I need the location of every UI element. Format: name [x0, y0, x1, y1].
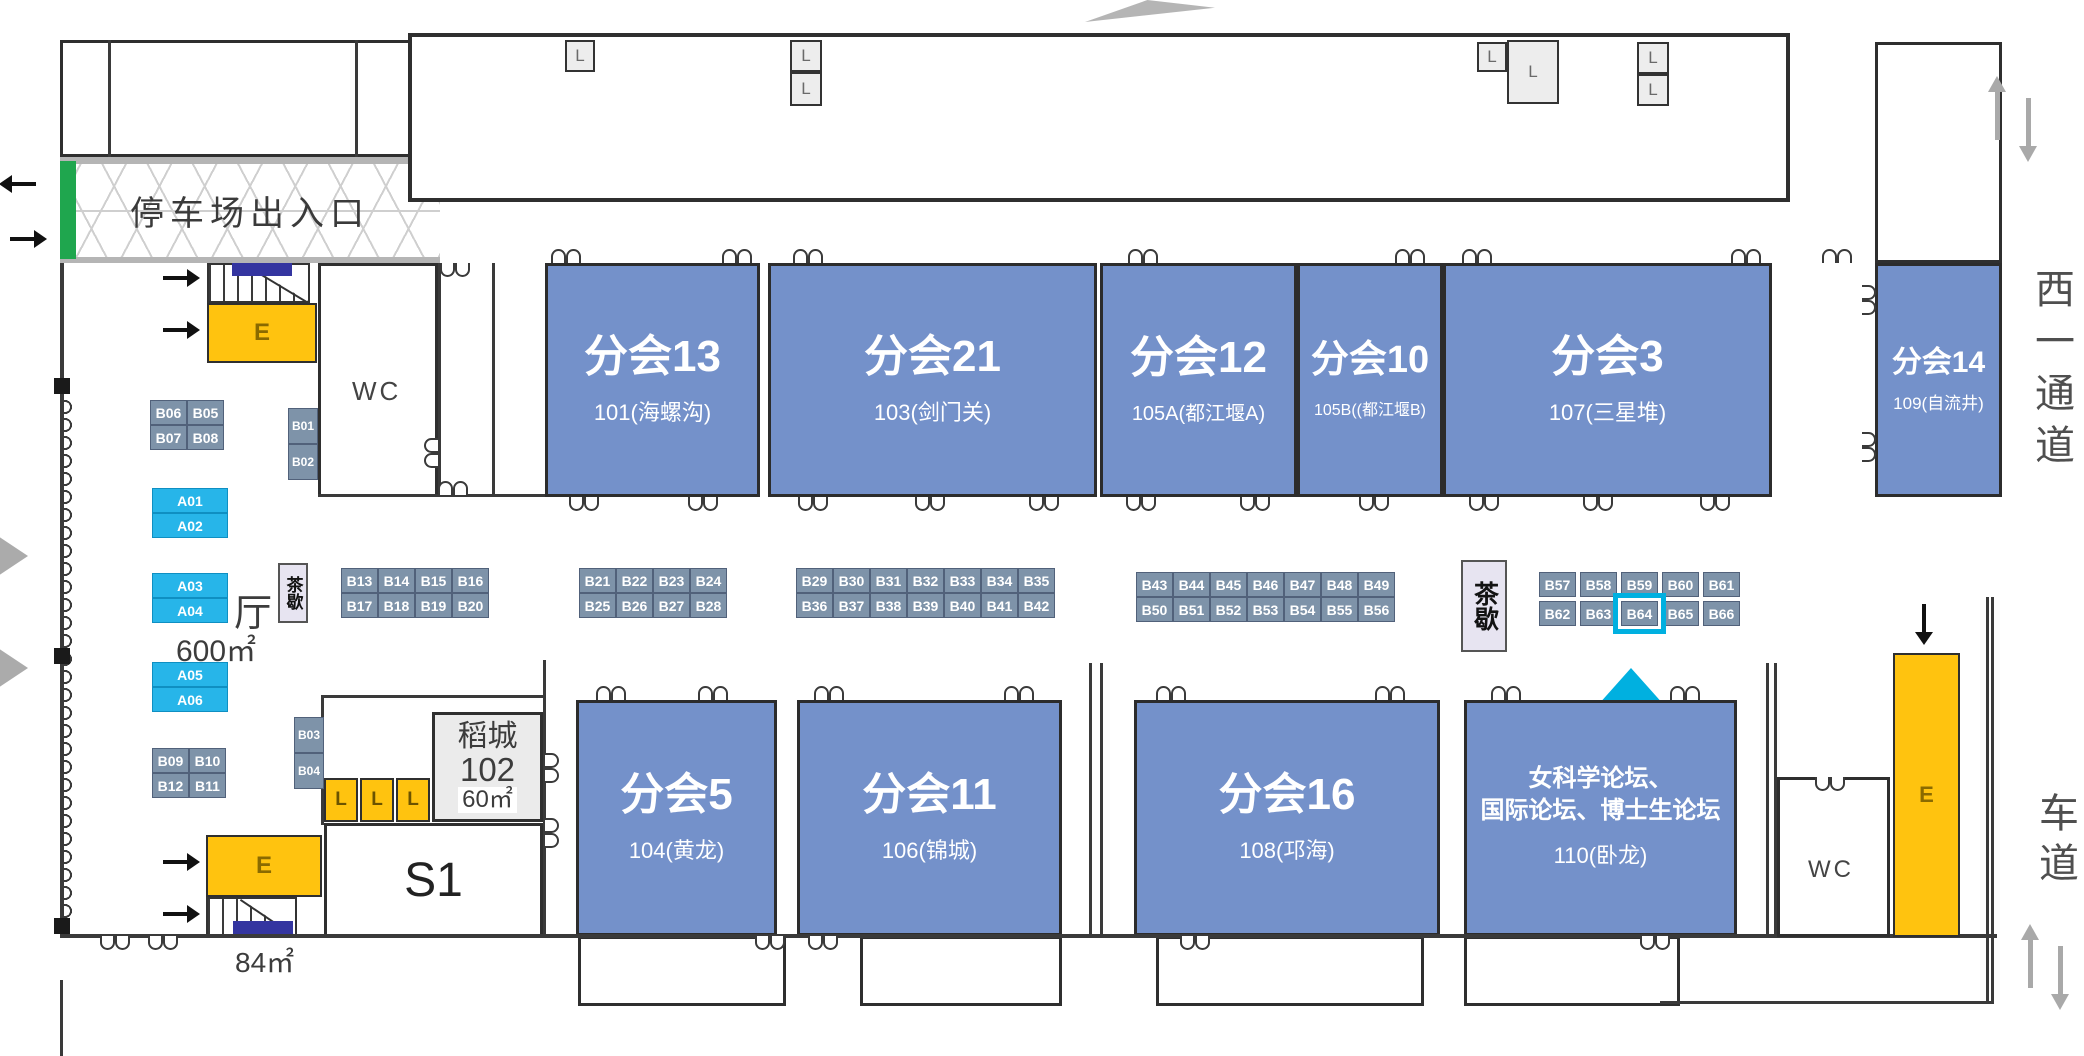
- escalator-bar: [232, 263, 292, 276]
- entry-arrow-icon: [0, 532, 28, 580]
- lift-box[interactable]: L: [1507, 40, 1559, 104]
- booth-b27[interactable]: B27: [653, 593, 690, 618]
- door-arc: [551, 249, 581, 263]
- door-arc: [545, 818, 559, 848]
- booth-b31[interactable]: B31: [870, 568, 907, 593]
- booth-b53[interactable]: B53: [1247, 597, 1284, 622]
- booth-b10[interactable]: B10: [189, 748, 226, 773]
- booth-b07[interactable]: B07: [150, 425, 187, 450]
- door-arc: [100, 936, 130, 950]
- door-arc: [148, 936, 178, 950]
- room-105b-title: 分会10: [1311, 340, 1429, 382]
- room-101-subtitle: 101(海螺沟): [594, 395, 711, 427]
- booth-b25[interactable]: B25: [579, 593, 616, 618]
- door-arc: [814, 686, 844, 700]
- annex-box: [860, 936, 1062, 1006]
- corridor-wall: [1766, 663, 1777, 937]
- top-hall: [408, 33, 1790, 202]
- room-107[interactable]: 分会3 107(三星堆): [1443, 263, 1772, 497]
- door-arc: [596, 686, 626, 700]
- up-arrow-icon: [1995, 90, 2000, 140]
- stair-area-label: 84㎡: [235, 941, 294, 981]
- door-arc: [1862, 285, 1876, 315]
- room-105b-subtitle: 105B((都江堰B): [1314, 396, 1426, 420]
- booth-group-b57: B57B58B59B60B61B62B63B64B65B66: [1537, 570, 1742, 628]
- right-arrow-icon: [163, 912, 189, 916]
- booth-a06[interactable]: A06: [152, 687, 228, 712]
- wall: [492, 263, 495, 497]
- booth-b40[interactable]: B40: [944, 593, 981, 618]
- booth-group-a03: A03A04: [152, 573, 228, 623]
- room-s1[interactable]: S1: [324, 823, 543, 937]
- door-arc: [1815, 777, 1845, 791]
- door-arc: [1670, 686, 1700, 700]
- booth-group-b29: B29B30B31B32B33B34B35B36B37B38B39B40B41B…: [796, 568, 1055, 618]
- door-arc: [798, 497, 828, 511]
- room-103-title: 分会21: [864, 333, 1001, 381]
- booth-b17[interactable]: B17: [341, 593, 378, 618]
- room-105b[interactable]: 分会10 105B((都江堰B): [1297, 263, 1443, 497]
- elevator-box[interactable]: E: [207, 303, 317, 363]
- booth-b56[interactable]: B56: [1358, 597, 1395, 622]
- tea-break-booth[interactable]: 茶歇: [278, 563, 308, 623]
- booth-a04[interactable]: A04: [152, 598, 228, 623]
- door-arc: [545, 753, 559, 783]
- west-corridor-label: 西一通道: [2022, 268, 2080, 476]
- wc-bottom-label: WC: [1808, 856, 1854, 884]
- door-arc: [915, 497, 945, 511]
- wall-post: [54, 918, 70, 934]
- room-104-title: 分会5: [620, 771, 732, 819]
- booth-b23[interactable]: B23: [653, 568, 690, 593]
- booth-b26[interactable]: B26: [616, 593, 653, 618]
- door-arc: [440, 263, 470, 277]
- room-101[interactable]: 分会13 101(海螺沟): [545, 263, 760, 497]
- booth-b47[interactable]: B47: [1284, 572, 1321, 597]
- booth-b62[interactable]: B62: [1539, 601, 1576, 626]
- booth-group-b13: B13B14B15B16B17B18B19B20: [341, 568, 489, 618]
- room-107-title: 分会3: [1551, 333, 1663, 381]
- right-arrow-icon: [163, 860, 189, 864]
- booth-b58[interactable]: B58: [1580, 572, 1617, 597]
- booth-b02[interactable]: B02: [288, 444, 318, 480]
- room-102-name: 稻城: [458, 721, 518, 753]
- lift-label: L: [575, 46, 584, 66]
- door-arc: [1126, 497, 1156, 511]
- parking-entrance-label: 停车场出入口: [130, 186, 370, 235]
- parking-gate-bar: [60, 161, 76, 259]
- booth-b14[interactable]: B14: [378, 568, 415, 593]
- booth-group-a01: A01A02: [152, 488, 228, 538]
- room-105a-subtitle: 105A(都江堰A): [1132, 397, 1265, 426]
- exit-left-arrow-icon: [10, 182, 36, 186]
- booth-group-b03: B03B04: [294, 717, 324, 789]
- booth-b04[interactable]: B04: [294, 753, 324, 789]
- lift-group-yellow: LLL: [324, 778, 432, 822]
- lift-label: L: [801, 79, 810, 99]
- booth-b01[interactable]: B01: [288, 408, 318, 444]
- lift-box[interactable]: L: [1477, 42, 1507, 72]
- wall: [108, 40, 111, 157]
- door-arc: [1700, 497, 1730, 511]
- room-102-area: 60㎡: [458, 787, 517, 812]
- door-arc: [1375, 686, 1405, 700]
- room-110-line2: 国际论坛、博士生论坛: [1481, 798, 1721, 824]
- floor-plan: 停车场出入口 L L L L L L L 分会13 101(海螺沟) 分会21 …: [0, 0, 2084, 1056]
- booth-b13[interactable]: B13: [341, 568, 378, 593]
- booth-b33[interactable]: B33: [944, 568, 981, 593]
- booth-b45[interactable]: B45: [1210, 572, 1247, 597]
- door-arc: [1395, 249, 1425, 263]
- lift-label: L: [1487, 47, 1496, 67]
- tea-break-label: 茶歇: [1472, 581, 1497, 631]
- booth-b41[interactable]: B41: [981, 593, 1018, 618]
- wall: [321, 695, 545, 698]
- booth-b05[interactable]: B05: [187, 400, 224, 425]
- booth-b48[interactable]: B48: [1321, 572, 1358, 597]
- wall-post: [54, 648, 70, 664]
- booth-b51[interactable]: B51: [1173, 597, 1210, 622]
- booth-b39[interactable]: B39: [907, 593, 944, 618]
- booth-b22[interactable]: B22: [616, 568, 653, 593]
- room-109[interactable]: 分会14 109(自流井): [1875, 263, 2002, 497]
- door-arc: [1731, 249, 1761, 263]
- room-105a-title: 分会12: [1130, 334, 1267, 382]
- wall: [318, 494, 545, 497]
- room-101-title: 分会13: [584, 333, 721, 381]
- wall: [60, 934, 1997, 938]
- door-arc: [1491, 686, 1521, 700]
- wall: [543, 660, 546, 937]
- door-arc: [688, 497, 718, 511]
- booth-b34[interactable]: B34: [981, 568, 1018, 593]
- room-104[interactable]: 分会5 104(黄龙): [576, 700, 777, 936]
- booth-group-b06: B06B05B07B08: [150, 400, 224, 450]
- right-arrow-icon: [163, 276, 189, 280]
- room-103[interactable]: 分会21 103(剑门关): [768, 263, 1097, 497]
- top-direction-arrow-icon: [1085, 0, 1215, 22]
- room-110[interactable]: 女科学论坛、 国际论坛、博士生论坛 110(卧龙): [1464, 700, 1737, 936]
- room-106[interactable]: 分会11 106(锦城): [797, 700, 1062, 936]
- booth-b64[interactable]: B64: [1621, 601, 1658, 626]
- door-arc: [698, 686, 728, 700]
- booth-b16[interactable]: B16: [452, 568, 489, 593]
- tea-break-booth[interactable]: 茶歇: [1461, 560, 1507, 652]
- room-110-subtitle: 110(卧龙): [1554, 838, 1648, 870]
- booth-group-b01: B01B02: [288, 408, 318, 480]
- door-arc: [1862, 432, 1876, 462]
- booth-group-a05: A05A06: [152, 662, 228, 712]
- booth-b29[interactable]: B29: [796, 568, 833, 593]
- booth-a03[interactable]: A03: [152, 573, 228, 598]
- door-arc: [808, 936, 838, 950]
- booth-b54[interactable]: B54: [1284, 597, 1321, 622]
- top-left-building: [60, 40, 440, 157]
- booth-l[interactable]: L: [324, 778, 358, 822]
- booth-b37[interactable]: B37: [833, 593, 870, 618]
- booth-group-b21: B21B22B23B24B25B26B27B28: [579, 568, 727, 618]
- room-108[interactable]: 分会16 108(邛海): [1134, 700, 1440, 936]
- booth-b35[interactable]: B35: [1018, 568, 1055, 593]
- door-arc: [1128, 249, 1158, 263]
- booth-group-b09: B09B10B12B11: [152, 748, 226, 798]
- booth-b43[interactable]: B43: [1136, 572, 1173, 597]
- booth-b20[interactable]: B20: [452, 593, 489, 618]
- room-109-title: 分会14: [1892, 346, 1985, 379]
- room-103-subtitle: 103(剑门关): [874, 395, 991, 427]
- door-arc: [1180, 936, 1210, 950]
- top-right-room: [1875, 42, 2002, 263]
- room-106-title: 分会11: [862, 771, 997, 819]
- entry-arrow-icon: [0, 644, 28, 692]
- booth-b49[interactable]: B49: [1358, 572, 1395, 597]
- lift-label: L: [1648, 80, 1657, 100]
- elevator-box[interactable]: E: [1893, 653, 1960, 937]
- booth-b28[interactable]: B28: [690, 593, 727, 618]
- booth-b30[interactable]: B30: [833, 568, 870, 593]
- down-arrow-icon: [2026, 98, 2031, 148]
- up-arrow-icon: [2028, 938, 2033, 988]
- booth-b21[interactable]: B21: [579, 568, 616, 593]
- corridor-wall: [1089, 663, 1103, 937]
- wall-post: [54, 378, 70, 394]
- booth-b12[interactable]: B12: [152, 773, 189, 798]
- elevator-label: E: [254, 319, 270, 347]
- door-arc: [438, 481, 468, 495]
- booth-group-b43: B43B44B45B46B47B48B49B50B51B52B53B54B55B…: [1136, 572, 1395, 622]
- room-102-number: 102: [460, 753, 515, 788]
- down-arrow-icon: [2058, 946, 2063, 996]
- room-108-title: 分会16: [1219, 771, 1356, 819]
- elevator-label: E: [1919, 782, 1934, 808]
- right-arrow-icon: [163, 328, 189, 332]
- booth-b09[interactable]: B09: [152, 748, 189, 773]
- lift-label: L: [801, 46, 810, 66]
- door-arc: [424, 438, 438, 468]
- lift-box[interactable]: L: [790, 40, 822, 72]
- wall: [60, 980, 63, 1056]
- door-arc: [1462, 249, 1492, 263]
- door-arc: [722, 249, 752, 263]
- lift-box[interactable]: L: [1637, 74, 1669, 106]
- corridor-wall: [1986, 597, 1994, 1003]
- down-arrow-icon: [1922, 604, 1926, 634]
- room-105a[interactable]: 分会12 105A(都江堰A): [1100, 263, 1297, 497]
- elevator-box[interactable]: E: [206, 835, 322, 897]
- booth-b32[interactable]: B32: [907, 568, 944, 593]
- booth-b42[interactable]: B42: [1018, 593, 1055, 618]
- booth-b19[interactable]: B19: [415, 593, 452, 618]
- door-arc: [1029, 497, 1059, 511]
- booth-b11[interactable]: B11: [189, 773, 226, 798]
- booth-b65[interactable]: B65: [1662, 601, 1699, 626]
- room-s1-label: S1: [404, 853, 463, 908]
- tea-break-label: 茶歇: [285, 576, 302, 610]
- booth-b60[interactable]: B60: [1662, 572, 1699, 597]
- lift-box[interactable]: L: [1637, 42, 1669, 74]
- lift-label: L: [1528, 62, 1537, 82]
- door-arc: [1822, 249, 1852, 263]
- booth-b55[interactable]: B55: [1321, 597, 1358, 622]
- enter-right-arrow-icon: [10, 237, 36, 241]
- booth-b15[interactable]: B15: [415, 568, 452, 593]
- booth-b57[interactable]: B57: [1539, 572, 1576, 597]
- booth-b38[interactable]: B38: [870, 593, 907, 618]
- door-arc: [1156, 686, 1186, 700]
- booth-b06[interactable]: B06: [150, 400, 187, 425]
- booth-b46[interactable]: B46: [1247, 572, 1284, 597]
- room-110-line1: 女科学论坛、: [1529, 766, 1673, 792]
- wall: [438, 263, 441, 497]
- door-arc: [755, 936, 785, 950]
- booth-b63[interactable]: B63: [1580, 601, 1617, 626]
- booth-b24[interactable]: B24: [690, 568, 727, 593]
- booth-a02[interactable]: A02: [152, 513, 228, 538]
- room-102[interactable]: 稻城 102 60㎡: [432, 712, 543, 822]
- room-107-subtitle: 107(三星堆): [1549, 395, 1666, 427]
- wc-top-label: WC: [352, 376, 401, 407]
- booth-b36[interactable]: B36: [796, 593, 833, 618]
- room-109-subtitle: 109(自流井): [1893, 389, 1984, 414]
- booth-b66[interactable]: B66: [1703, 601, 1740, 626]
- door-arc: [1240, 497, 1270, 511]
- wall: [355, 40, 358, 157]
- booth-b18[interactable]: B18: [378, 593, 415, 618]
- door-arc: [569, 497, 599, 511]
- booth-a05[interactable]: A05: [152, 662, 228, 687]
- room-108-subtitle: 108(邛海): [1239, 833, 1334, 865]
- door-arc: [793, 249, 823, 263]
- room-104-subtitle: 104(黄龙): [629, 833, 724, 865]
- booth-a01[interactable]: A01: [152, 488, 228, 513]
- door-arc: [1359, 497, 1389, 511]
- booth-b61[interactable]: B61: [1703, 572, 1740, 597]
- door-arc: [1004, 686, 1034, 700]
- booth-b08[interactable]: B08: [187, 425, 224, 450]
- escalator-bar: [233, 921, 293, 935]
- lift-box[interactable]: L: [790, 72, 822, 106]
- driveway-label: 车道: [2026, 792, 2084, 892]
- booth-b52[interactable]: B52: [1210, 597, 1247, 622]
- booth-b50[interactable]: B50: [1136, 597, 1173, 622]
- lift-label: L: [1648, 48, 1657, 68]
- booth-l[interactable]: L: [396, 778, 430, 822]
- door-arc: [1583, 497, 1613, 511]
- wall: [1660, 1001, 1994, 1004]
- booth-b44[interactable]: B44: [1173, 572, 1210, 597]
- room-106-subtitle: 106(锦城): [882, 833, 977, 865]
- booth-b59[interactable]: B59: [1621, 572, 1658, 597]
- booth-l[interactable]: L: [360, 778, 394, 822]
- lift-box[interactable]: L: [565, 40, 595, 72]
- booth-b03[interactable]: B03: [294, 717, 324, 753]
- door-arc: [1469, 497, 1499, 511]
- parking-entrance-area[interactable]: 停车场出入口: [60, 157, 440, 263]
- door-arc: [1640, 936, 1670, 950]
- elevator-label: E: [256, 852, 272, 880]
